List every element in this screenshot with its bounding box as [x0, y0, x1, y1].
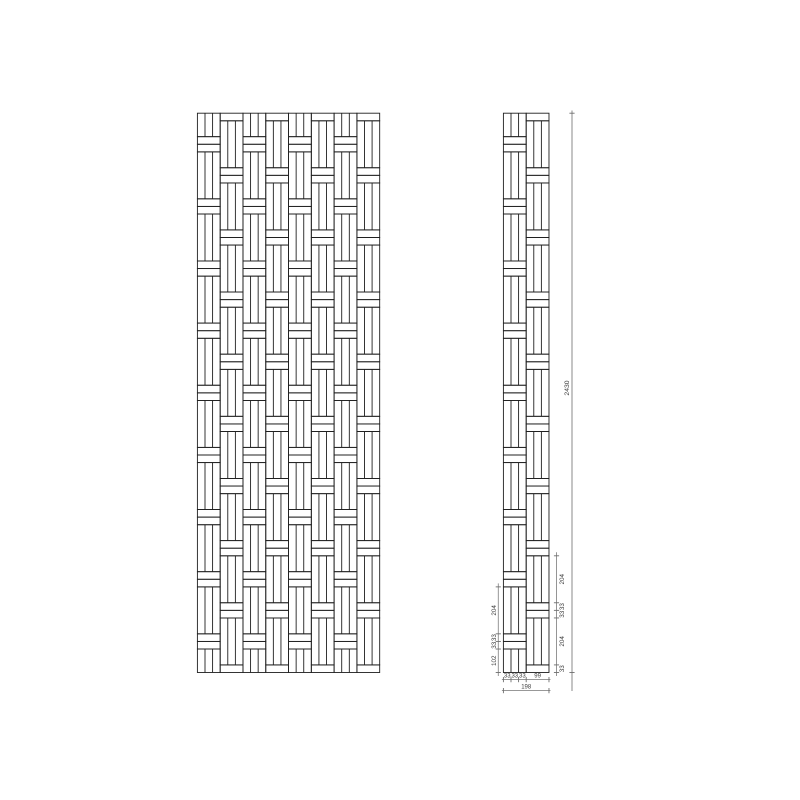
dimension-chain-left: 1023333204	[491, 583, 501, 676]
dimension-label: 33	[511, 674, 518, 680]
dimension-label: 33	[491, 634, 498, 642]
dimension-label: 33	[559, 665, 566, 673]
side-view	[503, 113, 549, 672]
dimension-bottom-widths: 33333399	[502, 674, 551, 683]
dimension-label: 33	[519, 674, 526, 680]
technical-drawing: 1023333204332043333204243033333399198	[0, 0, 800, 800]
front-view	[197, 113, 379, 672]
dimension-chain-right: 332043333204	[554, 552, 566, 676]
dimension-label: 102	[491, 655, 498, 666]
drawing-canvas: 1023333204332043333204243033333399198	[0, 0, 800, 800]
dimension-label: 198	[521, 685, 532, 691]
dimension-label: 204	[559, 636, 566, 647]
dimension-label: 33	[491, 641, 498, 649]
dimension-label: 204	[559, 574, 566, 585]
dimension-label: 33	[559, 610, 566, 618]
dimension-bottom-total: 198	[502, 685, 551, 694]
dimension-label: 33	[504, 674, 511, 680]
dimension-label: 99	[534, 674, 541, 680]
dimension-label: 2430	[564, 380, 571, 395]
dimension-label: 204	[491, 605, 498, 616]
dimension-label: 33	[559, 603, 566, 611]
